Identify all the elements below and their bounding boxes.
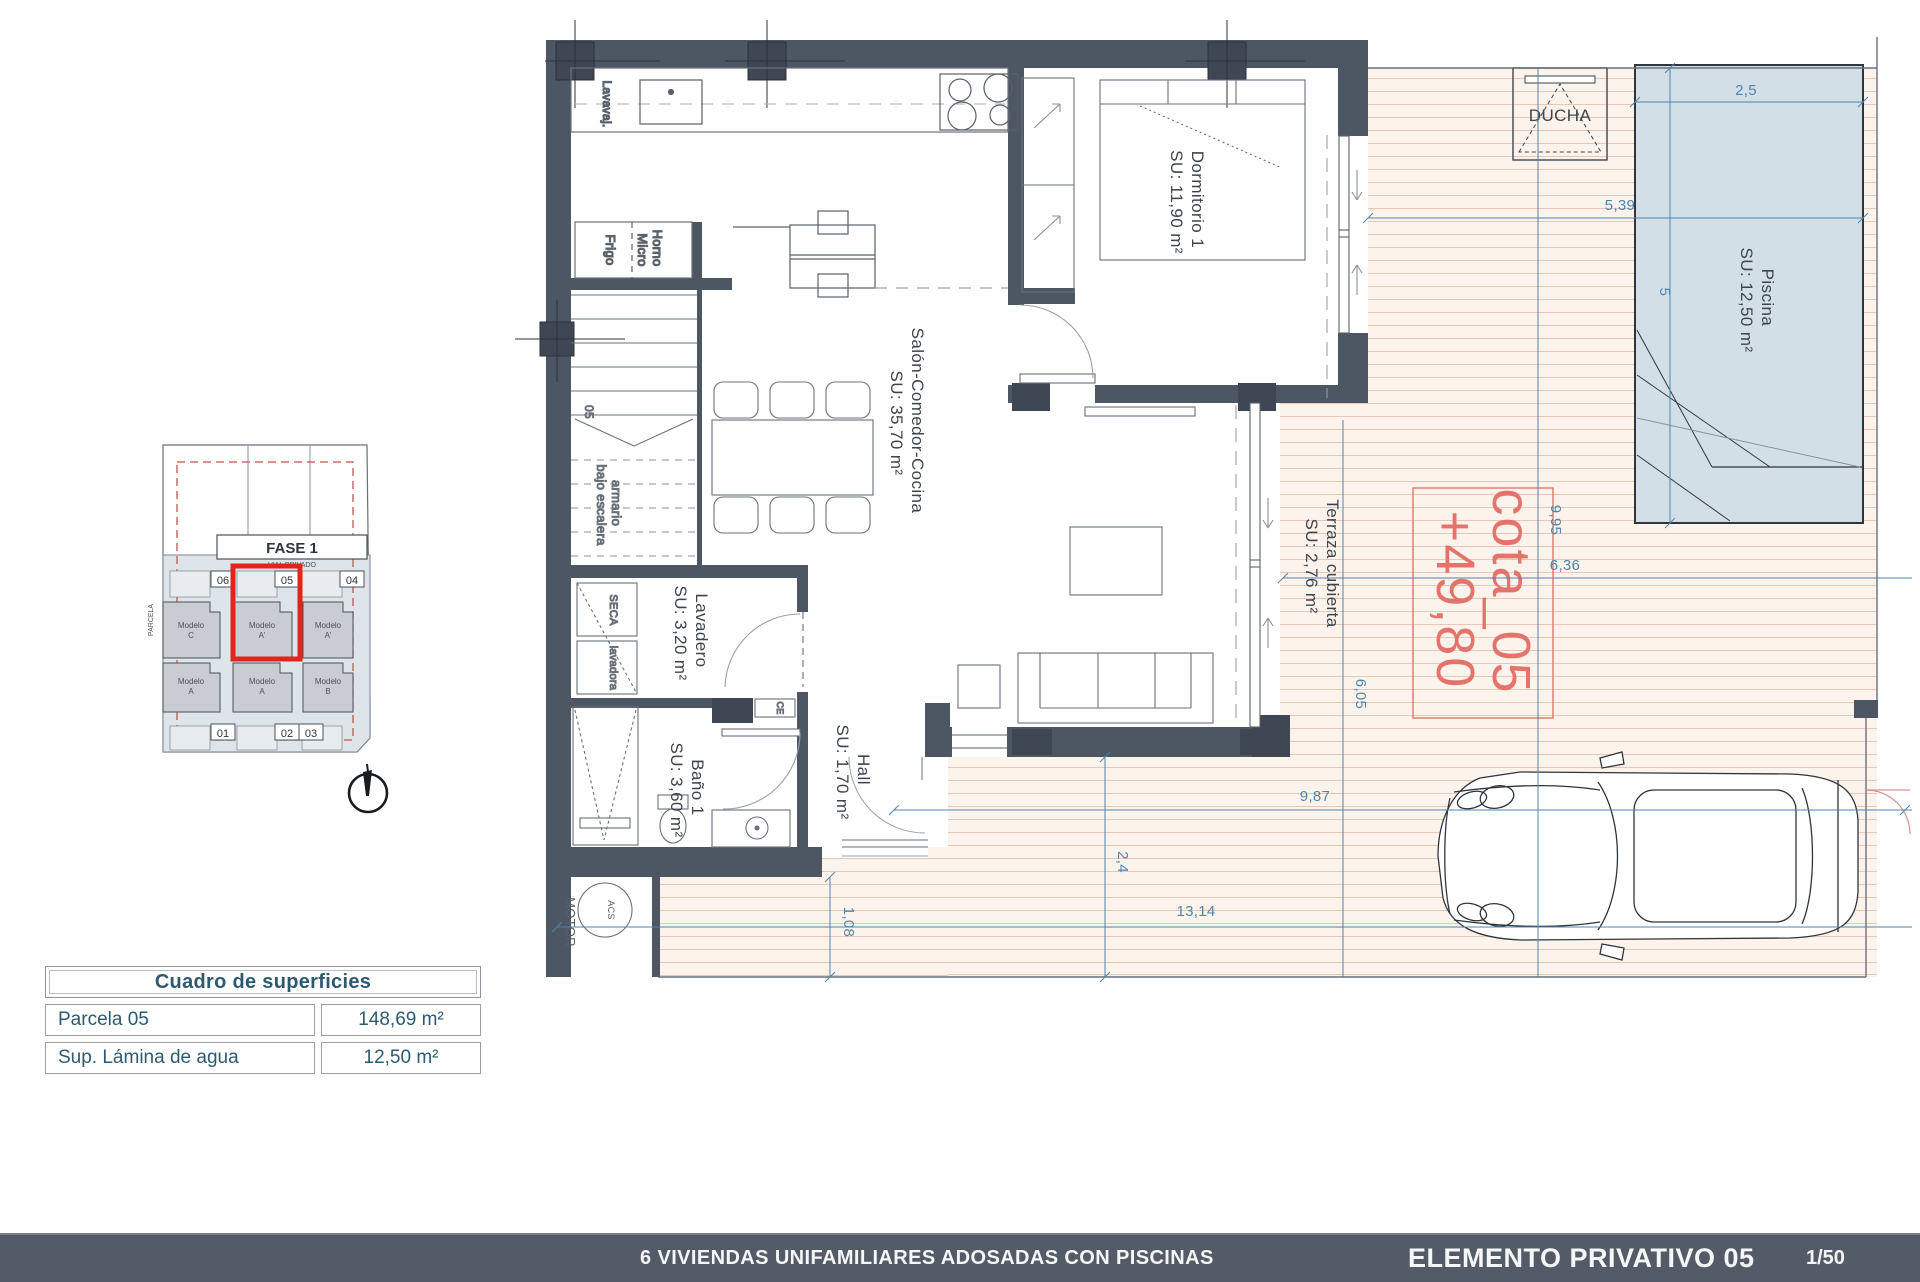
living-south-window (952, 727, 1007, 757)
surface-row-value: 148,69 m² (321, 1004, 481, 1036)
electrical-panel-label: CE (775, 701, 785, 714)
floor-plan-drawing: Piscina SU: 12,50 m² DUCHA (0, 0, 1920, 1280)
sheet-title: ELEMENTO PRIVATIVO 05 (1408, 1235, 1755, 1282)
shower (573, 707, 638, 845)
north-arrow (349, 764, 387, 812)
surface-table: Cuadro de superficies Parcela 05 148,69 … (45, 966, 481, 1074)
outdoor-shower: DUCHA (1513, 68, 1607, 160)
side-table (958, 665, 1000, 708)
bath-vanity (712, 810, 790, 847)
dryer-label: SECA (607, 594, 619, 626)
dining-area (712, 382, 873, 533)
site-plan-thumbnail: FASE 1 VIAL PRIVADO ModeloC ModeloA' Mod… (148, 445, 387, 812)
sofa (1018, 653, 1213, 723)
kitchen-island (733, 211, 875, 297)
dim-plot-depth: 9,95 (1547, 505, 1564, 535)
wall-bath-south (546, 847, 822, 877)
living-area (952, 403, 1273, 757)
kitchen-sink (640, 80, 702, 124)
dim-side-strip: 1,08 (840, 907, 857, 937)
surface-row-label: Parcela 05 (45, 1004, 315, 1036)
fase-label: FASE 1 (266, 540, 318, 557)
dining-table (712, 420, 873, 495)
plot-number: 06 (217, 575, 229, 587)
washer-label: lavadora (607, 646, 619, 691)
entrance-threshold (822, 837, 928, 858)
oven-label: Horno Micro (635, 230, 665, 271)
dryer (577, 583, 637, 636)
hall-label: Hall SU: 1,70 m² (833, 724, 873, 819)
project-title: 6 VIVIENDAS UNIFAMILIARES ADOSADAS CON P… (640, 1235, 1214, 1282)
plot-number: 04 (346, 575, 358, 587)
wall-east-upper (1338, 40, 1368, 136)
dim-drive-width: 9,87 (1300, 788, 1330, 805)
cooktop (940, 74, 1018, 130)
surface-row-value: 12,50 m² (321, 1042, 481, 1074)
table-row: Sup. Lámina de agua 12,50 m² (45, 1042, 481, 1074)
motor-label: MOTOR (563, 897, 578, 947)
dim-plot-width: 13,14 (1176, 903, 1215, 920)
wall-west (546, 40, 571, 977)
bedroom-label: Dormitorio 1 SU: 11,90 m² (1167, 150, 1207, 254)
stairs: 05 armario bajo escalera (571, 295, 697, 556)
dim-terrace-width: 6,36 (1550, 557, 1580, 574)
acs-label: ACS (606, 900, 616, 919)
dim-pool-length: 5 (1656, 288, 1673, 297)
level-annotation: cota_05 +49,80 (1413, 488, 1553, 718)
dim-pool-width: 2,5 (1735, 82, 1757, 99)
living-room-label: Salón-Comedor-Cocina SU: 35,70 m² (887, 328, 927, 519)
washer (577, 641, 637, 694)
covered-terrace-label: Terraza cubierta SU: 2,76 m² (1302, 499, 1342, 632)
understair-closet-label: armario bajo escalera (594, 464, 624, 546)
table-row: Parcela 05 148,69 m² (45, 1004, 481, 1036)
bedroom-window (1339, 136, 1362, 333)
car (1438, 752, 1858, 960)
stair-number: 05 (582, 405, 596, 419)
wall-bedroom-stub (1022, 288, 1075, 304)
dim-terrace-depth: 6,05 (1352, 679, 1369, 709)
surface-table-title: Cuadro de superficies (45, 966, 481, 998)
sheet-scale: 1/50 (1806, 1235, 1845, 1282)
tv-bench (1085, 407, 1195, 416)
bathroom-label: Baño 1 SU: 3,60 m² (667, 742, 707, 837)
coffee-table (1070, 527, 1162, 595)
terrace-glass-door (1250, 403, 1273, 727)
surface-row-label: Sup. Lámina de agua (45, 1042, 315, 1074)
plant-room: MOTOR ACS (563, 883, 632, 947)
laundry-label: Lavadero SU: 3,20 m² (671, 585, 711, 680)
plot-number: 05 (281, 575, 293, 587)
fridge-label: Frigo (603, 234, 618, 265)
cota-text: cota_05 +49,80 (1425, 488, 1541, 711)
car-mirror-right (1600, 944, 1624, 960)
parcela-label: PARCELA (148, 604, 155, 636)
car-mirror-left (1600, 752, 1624, 768)
plot-number: 01 (217, 728, 229, 740)
appliance-closet: Frigo Horno Micro (575, 222, 692, 278)
title-bar: 6 VIVIENDAS UNIFAMILIARES ADOSADAS CON P… (0, 1233, 1920, 1282)
dim-pool-setback: 5,39 (1605, 197, 1635, 214)
dishwasher-label: Lavavaj. (600, 80, 614, 127)
plot-number: 02 (281, 728, 293, 740)
kitchen: Lavavaj. Frigo Horno Micro (571, 68, 1018, 297)
plot-number: 03 (305, 728, 317, 740)
dim-drive-depth: 2,4 (1114, 851, 1131, 873)
